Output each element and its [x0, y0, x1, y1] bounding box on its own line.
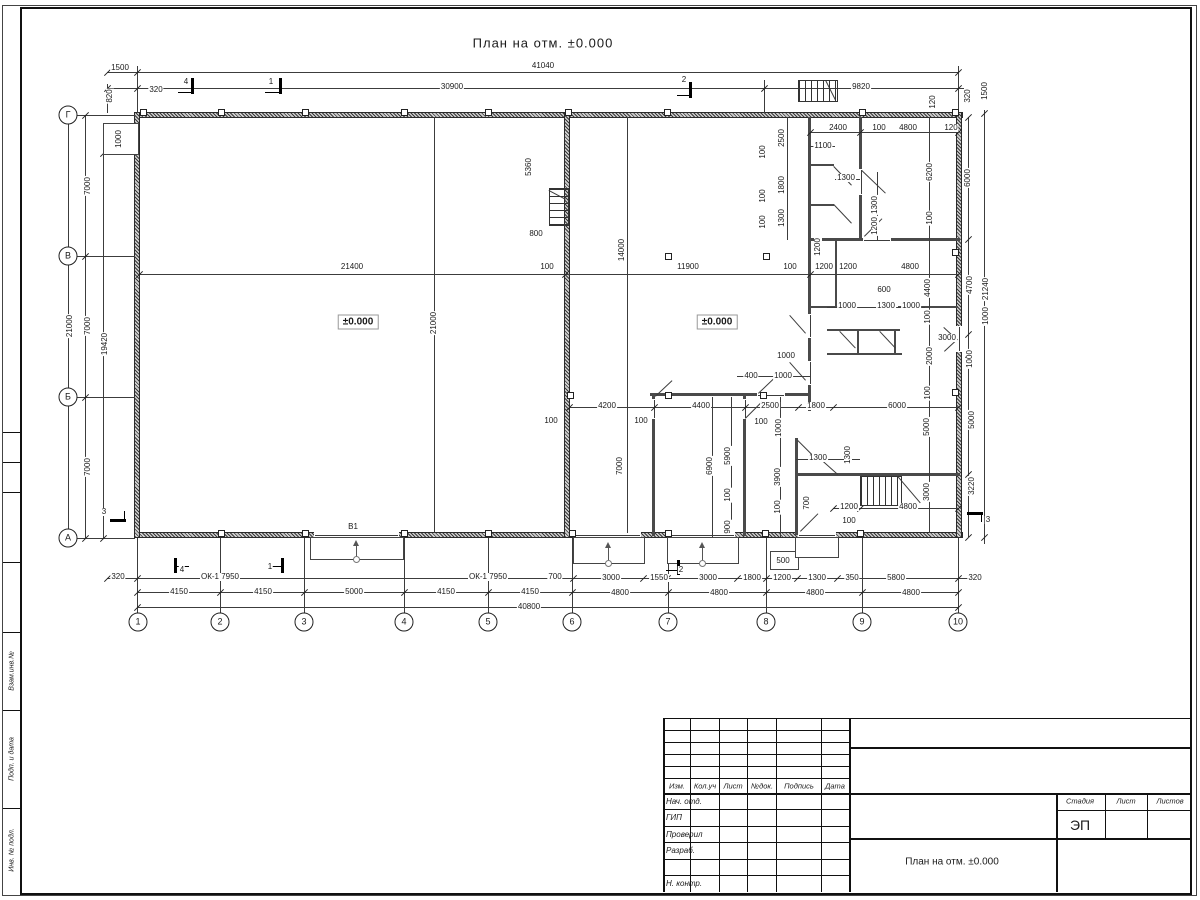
dim-label: 4400 — [691, 402, 711, 410]
stamp-row-nkontr: Н. контр. — [666, 879, 702, 888]
dim-label: 1500 — [110, 64, 130, 72]
dim-label: 2000 — [926, 346, 934, 366]
stamp-row-razrab: Разраб. — [666, 846, 695, 855]
dim-label: 4800 — [901, 589, 921, 597]
opening-line — [861, 170, 862, 194]
dim-label: 3000 — [937, 334, 957, 342]
column-marker — [401, 530, 408, 537]
dimension-line — [984, 110, 985, 544]
partition-wall — [857, 329, 859, 355]
dim-label: 1800 — [778, 175, 786, 195]
dim-label: 1200 — [772, 574, 792, 582]
dim-label: 400 — [743, 372, 758, 380]
dim-label: 1300 — [844, 445, 852, 465]
dim-label: 1000 — [982, 306, 990, 326]
stamp-stage-value: ЭП — [1070, 817, 1090, 833]
section-mark — [677, 95, 689, 96]
dim-label: 30900 — [440, 83, 464, 91]
dim-label: 3 — [101, 508, 107, 516]
column-marker — [952, 109, 959, 116]
dim-label: 600 — [876, 286, 891, 294]
partition-wall — [827, 353, 902, 355]
stamp-col-ndok: №док. — [751, 782, 773, 791]
dim-label: 100 — [724, 487, 732, 502]
dim-label: 100 — [782, 263, 797, 271]
column-marker — [569, 530, 576, 537]
section-mark — [110, 519, 126, 522]
dim-label: 1300 — [836, 174, 856, 182]
dim-label: 40800 — [517, 603, 541, 611]
dim-label: 100 — [753, 418, 768, 426]
apron-circle — [699, 560, 706, 567]
dimension-line — [107, 72, 958, 73]
margin-label-vzam: Взам.инв.№ — [9, 651, 16, 690]
axis-bubble: 6 — [563, 613, 582, 632]
section-mark — [281, 558, 284, 573]
dim-label: 7000 — [84, 176, 92, 196]
axis-bubble: Г — [59, 106, 78, 125]
stamp-col-izm: Изм. — [669, 782, 685, 791]
level-mark: ±0.000 — [338, 315, 379, 330]
dim-label: 1 — [268, 78, 274, 86]
column-marker — [565, 109, 572, 116]
partition-wall — [894, 329, 896, 355]
dim-label: 100 — [774, 499, 782, 514]
dim-label: В1 — [347, 523, 359, 531]
section-mark — [666, 570, 677, 571]
partition-wall — [810, 204, 834, 206]
column-marker — [665, 530, 672, 537]
dim-label: 1300 — [871, 195, 879, 215]
dim-label: 21000 — [430, 311, 438, 335]
opening-line — [576, 535, 640, 536]
dim-label: 3000 — [923, 482, 931, 502]
dim-label: 1100 — [813, 142, 832, 150]
dim-label: 1800 — [742, 574, 762, 582]
dim-label: 14000 — [618, 238, 626, 262]
column-marker — [665, 253, 672, 260]
column-marker — [218, 530, 225, 537]
dim-label: 4800 — [898, 503, 918, 511]
column-marker — [760, 392, 767, 399]
dim-label: 800 — [528, 230, 543, 238]
dim-label: 1300 — [876, 302, 896, 310]
dim-label: 3220 — [968, 476, 976, 496]
column-marker — [567, 392, 574, 399]
direction-arrowhead — [353, 540, 359, 546]
dim-label: 5000 — [923, 417, 931, 437]
dim-label: 7000 — [84, 457, 92, 477]
stamp-row-nach-otd: Нач. отд. — [666, 797, 702, 806]
dim-label: 120 — [943, 124, 958, 132]
dim-label: 100 — [924, 309, 932, 324]
stamp-col-koluch: Кол.уч — [694, 782, 716, 791]
dim-label: 1000 — [837, 302, 857, 310]
dim-label: 4 — [179, 566, 185, 574]
column-marker — [302, 109, 309, 116]
dim-label: 5800 — [886, 574, 906, 582]
dim-label: 5000 — [968, 410, 976, 430]
axis-bubble: А — [59, 529, 78, 548]
dim-label: 21000 — [66, 314, 74, 338]
stamp-stage-header: Стадия — [1066, 797, 1094, 806]
dim-label: 1000 — [966, 349, 974, 369]
dim-label: 2500 — [760, 402, 780, 410]
dim-label: 4150 — [253, 588, 273, 596]
dim-label: 320 — [967, 574, 982, 582]
drawing-title: План на отм. ±0.000 — [473, 36, 614, 51]
partition-wall — [827, 329, 900, 331]
wall — [135, 113, 962, 117]
dim-label: 1000 — [901, 302, 921, 310]
dim-label: 4150 — [520, 588, 540, 596]
dim-label: 1800 — [806, 402, 826, 410]
opening-line — [670, 535, 734, 536]
dim-label: 100 — [633, 417, 648, 425]
dimension-line — [627, 117, 628, 533]
partition-wall — [795, 438, 798, 535]
dim-label: 1000 — [773, 372, 793, 380]
column-marker — [485, 530, 492, 537]
axis-bubble: 7 — [659, 613, 678, 632]
section-mark — [124, 511, 125, 519]
dim-label: 700 — [803, 495, 811, 510]
dim-label: 5000 — [344, 588, 364, 596]
opening-line — [959, 327, 960, 351]
dimension-line — [862, 538, 863, 614]
margin-line — [3, 562, 20, 563]
dim-label: 3900 — [774, 467, 782, 487]
column-marker — [485, 109, 492, 116]
stairs — [798, 80, 838, 102]
dim-label: 3 — [985, 516, 991, 524]
opening-line — [799, 535, 835, 536]
axis-bubble: В — [59, 247, 78, 266]
dim-label: 4150 — [436, 588, 456, 596]
column-marker — [665, 392, 672, 399]
dim-label: 21400 — [340, 263, 364, 271]
dim-label: 6900 — [706, 456, 714, 476]
dim-label: 4400 — [924, 278, 932, 298]
partition-wall — [810, 164, 834, 166]
dim-label: 100 — [759, 188, 767, 203]
axis-bubble: 4 — [395, 613, 414, 632]
dim-label: 11900 — [676, 263, 700, 271]
level-mark: ±0.000 — [697, 315, 738, 330]
wall — [135, 113, 139, 537]
dim-label: 21240 — [982, 277, 990, 301]
dim-label: 1200 — [814, 237, 822, 257]
column-marker — [857, 530, 864, 537]
dim-label: 4800 — [900, 263, 920, 271]
dimension-line — [404, 538, 405, 614]
dim-label: 6000 — [964, 168, 972, 188]
dim-label: 1500 — [981, 81, 989, 101]
margin-line — [3, 710, 20, 711]
dimension-line — [764, 80, 765, 113]
outline — [795, 537, 839, 558]
dim-label: 100 — [871, 124, 886, 132]
axis-bubble: 5 — [479, 613, 498, 632]
column-marker — [401, 109, 408, 116]
dim-label: 700 — [547, 573, 562, 581]
stamp-col-podpis: Подпись — [784, 782, 814, 791]
drawing-frame — [20, 7, 1192, 895]
dim-label: 1300 — [808, 454, 828, 462]
dim-label: 1300 — [778, 208, 786, 228]
dim-label: 320 — [964, 88, 972, 103]
axis-bubble: 3 — [295, 613, 314, 632]
margin-line — [3, 808, 20, 809]
opening-line — [810, 315, 811, 337]
dim-label: 900 — [724, 519, 732, 534]
dim-label: 1000 — [775, 418, 783, 438]
dim-label: 350 — [844, 574, 859, 582]
dim-label: 1200 — [839, 503, 859, 511]
section-mark — [981, 515, 982, 522]
stamp-list-header: Лист — [1116, 797, 1135, 806]
axis-bubble: 9 — [853, 613, 872, 632]
margin-label-inv: Инв. № подл. — [9, 828, 16, 871]
dim-label: 19420 — [101, 332, 109, 356]
margin-line — [3, 632, 20, 633]
axis-bubble: 2 — [211, 613, 230, 632]
dim-label: 9820 — [851, 83, 871, 91]
dimension-line — [787, 117, 788, 240]
column-marker — [140, 109, 147, 116]
section-mark — [178, 92, 192, 93]
dim-label: 4700 — [966, 275, 974, 295]
dim-label: 7000 — [616, 456, 624, 476]
dim-label: 100 — [539, 263, 554, 271]
stamp-col-data: Дата — [825, 782, 845, 791]
dim-label: 3000 — [698, 574, 718, 582]
dim-label: 1000 — [115, 129, 123, 149]
stamp-row-gip: ГИП — [666, 813, 682, 822]
column-marker — [762, 530, 769, 537]
dim-label: 4800 — [709, 589, 729, 597]
margin-line — [3, 462, 20, 463]
column-marker — [302, 530, 309, 537]
dim-label: 4200 — [597, 402, 617, 410]
dim-label: 1200 — [814, 263, 834, 271]
drawing-sheet: Взам.инв.№ Подп. и дата Инв. № подл. Пла… — [0, 0, 1200, 900]
axis-bubble: Б — [59, 388, 78, 407]
column-marker — [952, 249, 959, 256]
partition-wall — [650, 393, 811, 396]
dim-label: 1200 — [838, 263, 858, 271]
axis-bubble: 8 — [757, 613, 776, 632]
dimension-line — [139, 274, 958, 275]
direction-arrowhead — [699, 542, 705, 548]
dim-label: 320 — [148, 86, 163, 94]
dim-label: 1 — [267, 563, 273, 571]
dim-label: 2 — [678, 566, 684, 574]
dim-label: 4800 — [898, 124, 918, 132]
dim-label: 4150 — [169, 588, 189, 596]
stamp-col-list: Лист — [723, 782, 742, 791]
section-mark — [279, 78, 282, 94]
dim-label: 2500 — [778, 128, 786, 148]
column-marker — [859, 109, 866, 116]
dim-label: 7000 — [84, 316, 92, 336]
margin-label-podp: Подп. и дата — [9, 737, 16, 781]
axis-bubble: 10 — [949, 613, 968, 632]
dim-label: 5900 — [724, 446, 732, 466]
opening-line — [810, 362, 811, 384]
dim-label: 1300 — [807, 574, 827, 582]
column-marker — [218, 109, 225, 116]
margin-line — [3, 492, 20, 493]
dim-label: 100 — [543, 417, 558, 425]
dim-label: 100 — [759, 144, 767, 159]
dim-label: 1000 — [776, 352, 796, 360]
stairs — [860, 476, 902, 506]
column-marker — [763, 253, 770, 260]
dim-label: 500 — [775, 557, 790, 565]
dimension-line — [137, 607, 958, 608]
margin-line — [3, 432, 20, 433]
dim-label: 6000 — [887, 402, 907, 410]
stairs — [549, 188, 569, 226]
dim-label: 100 — [759, 214, 767, 229]
dim-label: 820 — [106, 88, 114, 103]
dimension-line — [304, 538, 305, 614]
dim-label: 100 — [841, 517, 856, 525]
dim-label: 4800 — [610, 589, 630, 597]
dimension-line — [810, 132, 958, 133]
dim-label: 4800 — [805, 589, 825, 597]
dim-label: 2 — [681, 76, 687, 84]
opening-line — [315, 535, 398, 536]
direction-arrowhead — [605, 542, 611, 548]
dim-label: ОК-1 7950 — [200, 573, 240, 581]
dim-label: 4 — [183, 78, 189, 86]
wall — [565, 113, 569, 537]
stamp-doc-title: План на отм. ±0.000 — [905, 857, 999, 868]
section-mark — [689, 82, 692, 98]
axis-bubble: 1 — [129, 613, 148, 632]
dim-label: 120 — [929, 94, 937, 109]
dim-label: 3000 — [601, 574, 621, 582]
dim-label: 1550 — [649, 574, 669, 582]
dim-label: 100 — [926, 210, 934, 225]
column-marker — [952, 389, 959, 396]
section-mark — [265, 92, 279, 93]
dim-label: 6200 — [926, 162, 934, 182]
dim-label: 5360 — [525, 157, 533, 177]
apron-circle — [605, 560, 612, 567]
dim-label: 320 — [110, 573, 125, 581]
stamp-listov-header: Листов — [1156, 797, 1183, 806]
dim-label: 1200 — [871, 216, 879, 236]
stamp-row-proveril: Проверил — [666, 830, 703, 839]
column-marker — [664, 109, 671, 116]
dim-label: 100 — [924, 385, 932, 400]
apron-circle — [353, 556, 360, 563]
dim-label: ОК-1 7950 — [468, 573, 508, 581]
dim-label: 41040 — [531, 62, 555, 70]
dim-label: 2400 — [828, 124, 848, 132]
